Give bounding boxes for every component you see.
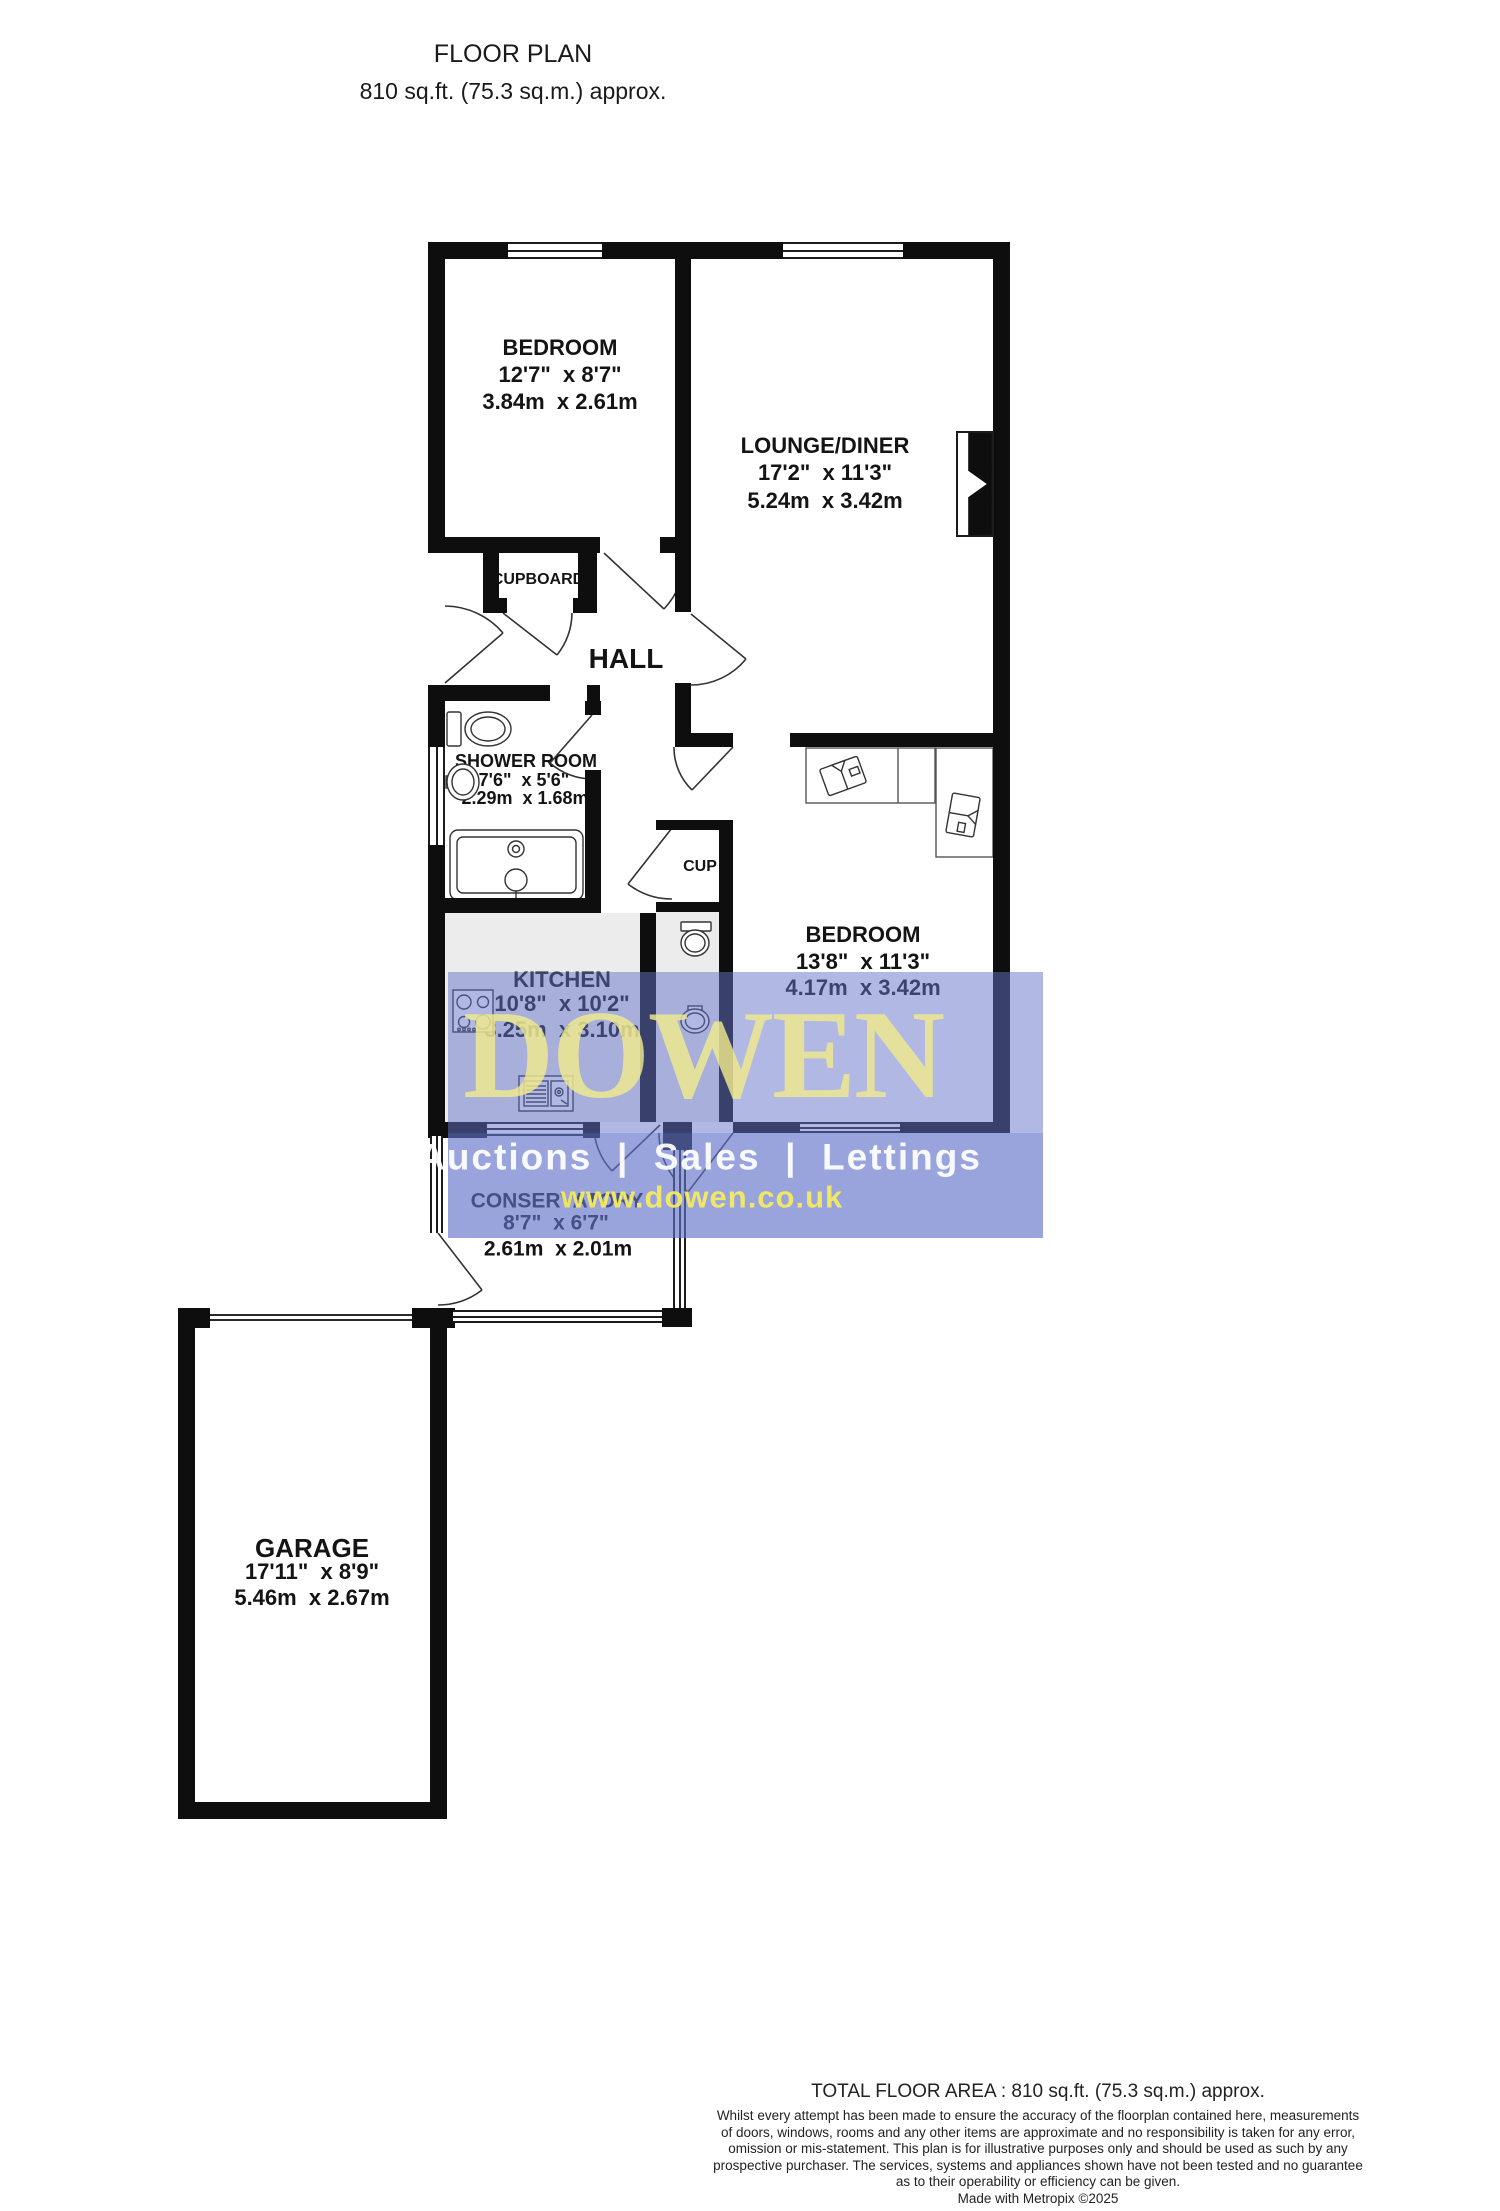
conservatory-corner [662, 1308, 692, 1327]
conservatory-glass-right [673, 1150, 686, 1308]
wall [656, 820, 733, 830]
wall [675, 259, 691, 612]
door-swing-bedroom1 [604, 553, 686, 609]
wall [428, 913, 445, 1122]
wall [428, 685, 550, 701]
garage-wall [178, 1328, 195, 1802]
door-swing-conservatory [438, 1233, 482, 1305]
page-root: FLOOR PLAN 810 sq.ft. (75.3 sq.m.) appro… [0, 0, 1500, 2211]
wall [719, 830, 733, 1122]
sink-icon [519, 1076, 573, 1111]
shirt2-icon [946, 793, 981, 837]
plan-linework [0, 0, 1500, 2211]
toilet2-icon [681, 922, 711, 956]
wall [583, 1122, 600, 1138]
door-swing-cupboard [503, 613, 572, 655]
conservatory-corner [420, 1308, 453, 1328]
wall [900, 1122, 1010, 1133]
shower-tray-icon [450, 830, 583, 900]
wall [993, 259, 1010, 1133]
wall [663, 1122, 692, 1150]
basin-icon [446, 764, 479, 800]
toilet-icon [447, 712, 511, 746]
wall [573, 598, 597, 613]
door-swing-lounge [691, 614, 746, 685]
conservatory-glass-bottom [453, 1310, 662, 1323]
wall [640, 913, 656, 1122]
garage-wall [178, 1802, 447, 1819]
door-swing-bedroom2 [674, 747, 733, 790]
wall [585, 770, 601, 913]
window-bedroom2 [800, 1122, 900, 1133]
wall [428, 898, 600, 913]
conservatory-glass-left [430, 1136, 443, 1233]
wall [585, 701, 601, 715]
wall [483, 598, 507, 613]
door-swing-front-entrance [445, 606, 503, 683]
door-swing-cup [628, 828, 672, 899]
garage-wall [178, 1308, 210, 1328]
window-kitchen [487, 1122, 583, 1136]
wall [587, 685, 600, 701]
hob-icon [453, 990, 493, 1032]
garage-wall [430, 1328, 447, 1802]
basin2-icon [681, 1006, 709, 1033]
wall [660, 537, 691, 553]
wall [428, 259, 445, 553]
garage-door [210, 1314, 412, 1321]
wall [733, 1122, 800, 1133]
window-bedroom1 [508, 242, 602, 259]
wall [428, 537, 600, 553]
door-swing-kitchen-rear [594, 1125, 660, 1171]
wall [675, 733, 733, 747]
fireplace-icon [956, 431, 994, 537]
window-shower-room [428, 747, 445, 845]
window-lounge [783, 242, 903, 259]
wall [790, 733, 1010, 747]
